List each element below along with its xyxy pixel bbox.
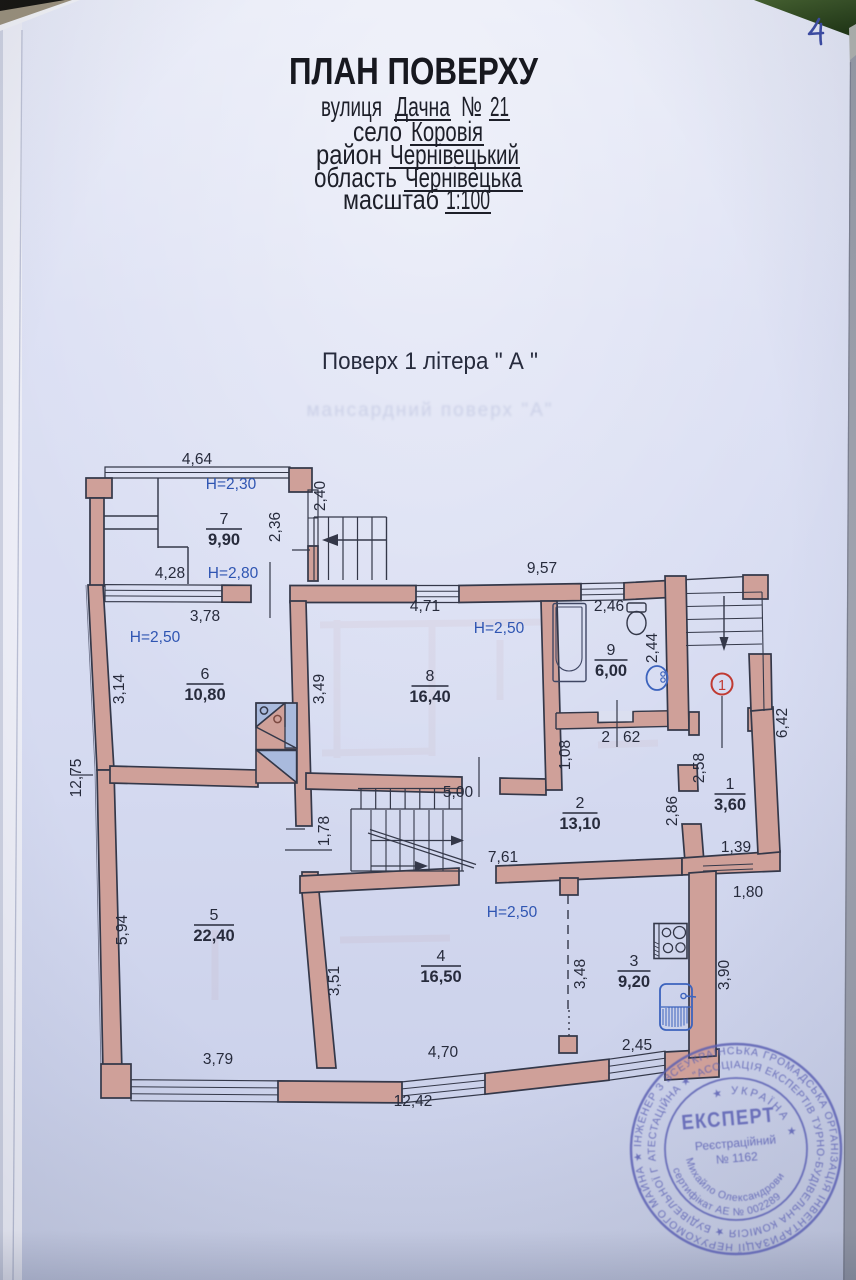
svg-text:1:100: 1:100: [446, 184, 490, 215]
svg-text:3,49: 3,49: [311, 674, 328, 704]
svg-text:ПЛАН ПОВЕРХУ: ПЛАН ПОВЕРХУ: [289, 51, 538, 93]
svg-text:1,08: 1,08: [557, 740, 574, 770]
svg-text:1,80: 1,80: [733, 884, 764, 901]
svg-text:62: 62: [623, 729, 640, 746]
svg-text:5: 5: [210, 907, 219, 924]
svg-text:5,94: 5,94: [114, 915, 131, 946]
svg-text:21: 21: [490, 91, 509, 122]
svg-text:4,70: 4,70: [428, 1044, 459, 1061]
svg-text:16,50: 16,50: [420, 968, 461, 986]
svg-text:10,80: 10,80: [184, 686, 225, 704]
svg-text:2,40: 2,40: [312, 481, 329, 512]
svg-text:4,28: 4,28: [155, 565, 185, 582]
svg-text:Поверх 1 літера " А ": Поверх 1 літера " А ": [322, 348, 538, 375]
svg-text:Н=2,50: Н=2,50: [130, 629, 181, 646]
svg-text:2: 2: [601, 729, 610, 746]
svg-text:3,51: 3,51: [326, 966, 343, 996]
svg-text:3,14: 3,14: [111, 674, 128, 705]
svg-text:2,86: 2,86: [664, 796, 681, 826]
svg-text:1: 1: [718, 678, 726, 694]
svg-text:6,42: 6,42: [774, 708, 791, 738]
svg-text:9,20: 9,20: [618, 973, 650, 991]
svg-text:16,40: 16,40: [409, 688, 450, 706]
svg-text:Н=2,80: Н=2,80: [208, 565, 259, 582]
svg-text:9,57: 9,57: [527, 560, 557, 577]
svg-text:2,46: 2,46: [594, 598, 624, 615]
svg-text:3,79: 3,79: [203, 1051, 233, 1068]
svg-text:12,42: 12,42: [394, 1093, 433, 1110]
svg-text:2,44: 2,44: [644, 633, 661, 664]
svg-text:22,40: 22,40: [193, 927, 234, 945]
svg-text:7: 7: [220, 511, 229, 528]
svg-text:3,48: 3,48: [572, 959, 589, 989]
svg-text:4: 4: [437, 948, 446, 965]
svg-text:7,61: 7,61: [488, 849, 518, 866]
svg-text:6,00: 6,00: [595, 662, 627, 680]
svg-text:масштаб: масштаб: [343, 184, 439, 215]
svg-text:8: 8: [426, 668, 435, 685]
svg-text:3,78: 3,78: [190, 608, 220, 625]
svg-text:3,90: 3,90: [716, 960, 733, 991]
svg-text:Н=2,50: Н=2,50: [474, 620, 525, 637]
svg-text:9,90: 9,90: [208, 531, 240, 549]
svg-text:5,00: 5,00: [443, 784, 474, 801]
svg-text:13,10: 13,10: [559, 815, 600, 833]
svg-text:6: 6: [201, 666, 210, 683]
svg-text:4,71: 4,71: [410, 598, 440, 615]
svg-text:9: 9: [607, 642, 616, 659]
svg-text:2,36: 2,36: [267, 512, 284, 542]
svg-text:Н=2,50: Н=2,50: [487, 904, 538, 921]
svg-text:1,39: 1,39: [721, 839, 751, 856]
svg-text:12,75: 12,75: [68, 759, 85, 798]
svg-text:1,78: 1,78: [316, 816, 333, 846]
svg-text:1: 1: [726, 776, 735, 793]
svg-text:мансардний поверх "А": мансардний поверх "А": [306, 400, 553, 421]
svg-text:3,60: 3,60: [714, 796, 746, 814]
svg-text:3: 3: [630, 953, 639, 970]
svg-text:2,58: 2,58: [691, 753, 708, 783]
svg-text:Н=2,30: Н=2,30: [206, 476, 257, 493]
svg-text:4,64: 4,64: [182, 451, 213, 468]
svg-text:2: 2: [576, 795, 585, 812]
svg-text:2,45: 2,45: [622, 1037, 652, 1054]
